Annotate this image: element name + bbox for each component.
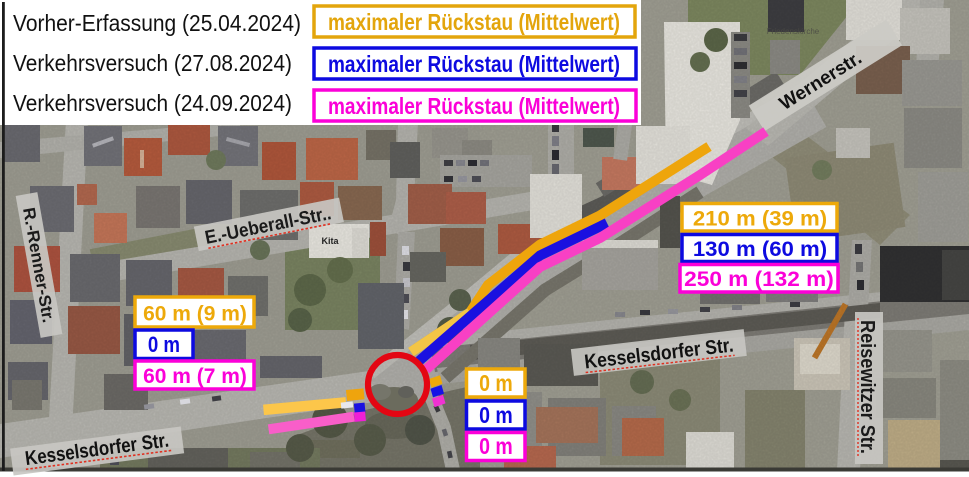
svg-text:Reisewitzer Str.: Reisewitzer Str. [856,320,879,454]
svg-text:0 m: 0 m [479,434,513,460]
svg-text:60 m (7 m): 60 m (7 m) [143,365,247,389]
svg-text:maximaler Rückstau (Mittelwert: maximaler Rückstau (Mittelwert) [328,51,620,77]
svg-text:250 m (132 m): 250 m (132 m) [684,268,834,292]
svg-text:Friedenskirche: Friedenskirche [767,27,820,36]
svg-text:Kita: Kita [321,236,339,246]
svg-text:maximaler Rückstau (Mittelwert: maximaler Rückstau (Mittelwert) [328,93,620,119]
svg-text:maximaler Rückstau (Mittelwert: maximaler Rückstau (Mittelwert) [328,9,620,35]
svg-text:0 m: 0 m [148,334,180,358]
svg-text:210 m (39 m): 210 m (39 m) [693,207,827,231]
svg-text:0 m: 0 m [479,371,513,397]
svg-text:Verkehrsversuch (27.08.2024): Verkehrsversuch (27.08.2024) [13,50,292,76]
svg-text:130 m (60 m): 130 m (60 m) [693,238,827,262]
svg-text:Verkehrsversuch (24.09.2024): Verkehrsversuch (24.09.2024) [13,90,292,116]
svg-text:0 m: 0 m [479,403,513,429]
svg-text:60 m (9 m): 60 m (9 m) [143,302,247,326]
svg-text:Vorher-Erfassung (25.04.2024): Vorher-Erfassung (25.04.2024) [13,10,301,36]
